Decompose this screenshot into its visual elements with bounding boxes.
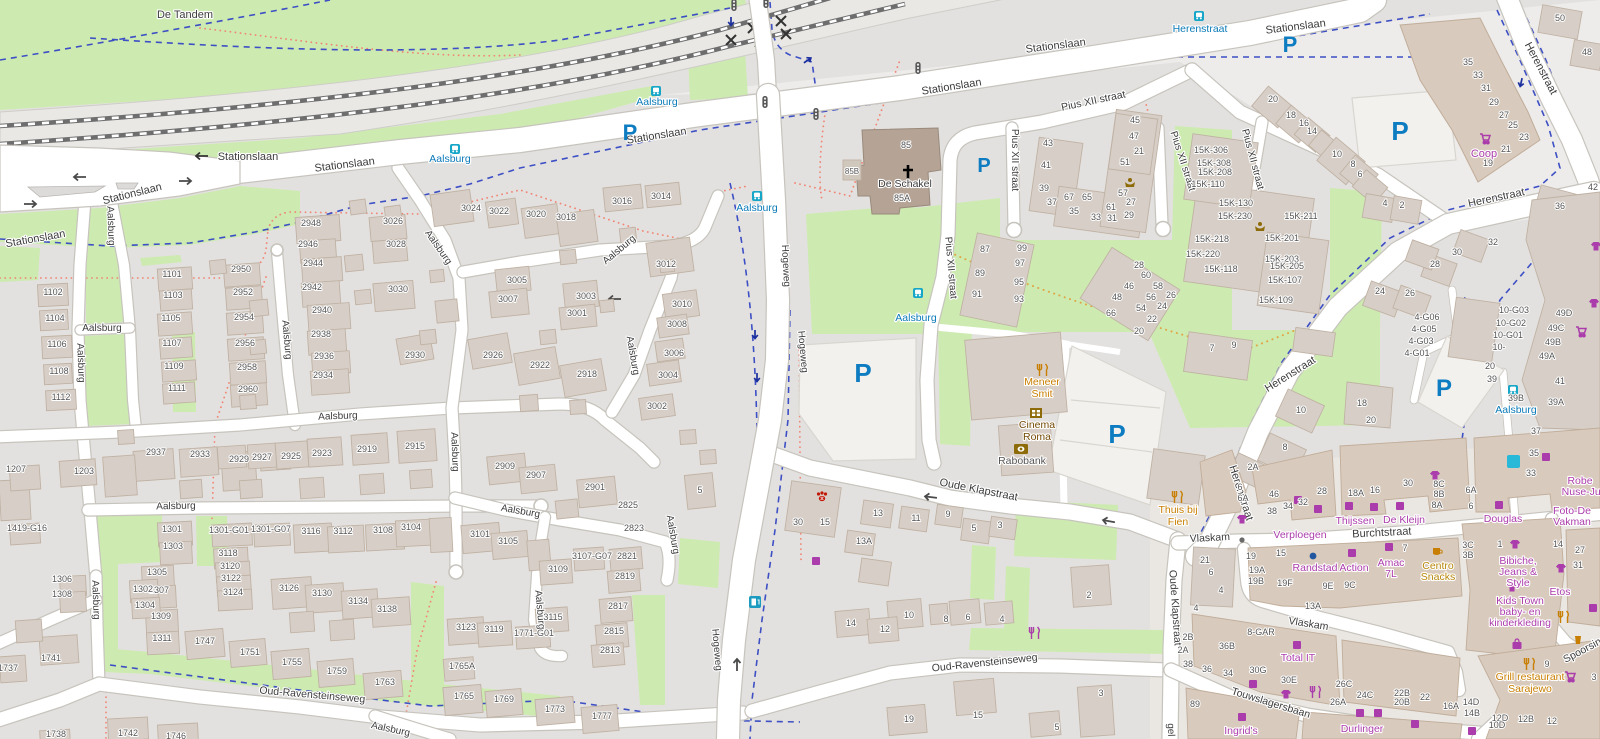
svg-text:43: 43 bbox=[1043, 138, 1053, 148]
svg-text:20: 20 bbox=[1366, 415, 1376, 425]
svg-text:1741: 1741 bbox=[41, 653, 61, 663]
svg-text:15K-201: 15K-201 bbox=[1265, 233, 1299, 243]
svg-text:Randstad: Randstad bbox=[1293, 562, 1338, 574]
svg-text:2815: 2815 bbox=[604, 626, 624, 636]
svg-text:49B: 49B bbox=[1545, 337, 1561, 347]
svg-text:3116: 3116 bbox=[301, 526, 320, 536]
svg-text:1301: 1301 bbox=[162, 524, 182, 534]
svg-text:13: 13 bbox=[873, 508, 883, 518]
svg-text:3006: 3006 bbox=[664, 348, 684, 358]
svg-text:11: 11 bbox=[911, 513, 920, 523]
svg-text:33: 33 bbox=[1526, 468, 1536, 478]
svg-text:3022: 3022 bbox=[489, 206, 509, 216]
svg-text:P: P bbox=[1108, 419, 1125, 449]
svg-text:27: 27 bbox=[1126, 197, 1136, 207]
svg-text:3008: 3008 bbox=[667, 319, 687, 329]
svg-text:1104: 1104 bbox=[45, 313, 64, 323]
svg-text:Smit: Smit bbox=[1032, 388, 1053, 400]
svg-text:Aalsburg: Aalsburg bbox=[104, 206, 116, 246]
svg-text:3005: 3005 bbox=[507, 275, 527, 285]
svg-text:89: 89 bbox=[1190, 699, 1200, 709]
svg-text:3004: 3004 bbox=[658, 370, 678, 380]
svg-text:51: 51 bbox=[1120, 157, 1130, 167]
svg-text:15K-205: 15K-205 bbox=[1270, 261, 1304, 271]
svg-text:Total IT: Total IT bbox=[1281, 652, 1316, 664]
svg-text:18A: 18A bbox=[1348, 488, 1364, 498]
svg-text:1308: 1308 bbox=[52, 589, 72, 599]
svg-text:6: 6 bbox=[1357, 169, 1362, 179]
svg-text:26: 26 bbox=[1166, 290, 1176, 300]
svg-text:15K-211: 15K-211 bbox=[1284, 211, 1317, 221]
svg-text:15K-110: 15K-110 bbox=[1191, 179, 1224, 189]
svg-text:1309: 1309 bbox=[151, 611, 171, 621]
svg-text:P: P bbox=[1391, 116, 1408, 146]
svg-text:10: 10 bbox=[1296, 405, 1306, 415]
svg-text:46: 46 bbox=[1269, 489, 1279, 499]
svg-text:10: 10 bbox=[904, 610, 914, 620]
svg-text:2944: 2944 bbox=[303, 258, 323, 268]
svg-text:3134: 3134 bbox=[348, 596, 368, 606]
svg-text:12: 12 bbox=[880, 624, 890, 634]
svg-text:58: 58 bbox=[1153, 281, 1163, 291]
svg-text:4: 4 bbox=[1382, 198, 1387, 208]
svg-text:1755: 1755 bbox=[282, 657, 302, 667]
svg-text:2952: 2952 bbox=[233, 287, 253, 297]
svg-text:3130: 3130 bbox=[312, 588, 332, 598]
svg-text:Aalsburg: Aalsburg bbox=[74, 343, 86, 383]
svg-text:20B: 20B bbox=[1394, 697, 1410, 707]
svg-text:20: 20 bbox=[1134, 326, 1144, 336]
svg-text:3002: 3002 bbox=[647, 401, 667, 411]
svg-text:24C: 24C bbox=[1357, 690, 1374, 700]
svg-text:Rabobank: Rabobank bbox=[998, 455, 1047, 467]
svg-text:Fien: Fien bbox=[1168, 516, 1189, 528]
svg-text:26A: 26A bbox=[1330, 697, 1346, 707]
svg-text:97: 97 bbox=[1015, 258, 1025, 268]
svg-text:2823: 2823 bbox=[624, 523, 644, 533]
svg-text:3115: 3115 bbox=[543, 612, 562, 622]
svg-text:15K-306: 15K-306 bbox=[1194, 145, 1228, 155]
svg-text:3: 3 bbox=[997, 520, 1002, 530]
svg-text:66: 66 bbox=[1106, 308, 1116, 318]
svg-text:15: 15 bbox=[820, 517, 830, 527]
svg-text:1746: 1746 bbox=[166, 731, 186, 739]
svg-text:7L: 7L bbox=[1385, 568, 1397, 580]
svg-text:34: 34 bbox=[1283, 501, 1293, 511]
svg-text:21: 21 bbox=[1134, 146, 1144, 156]
svg-text:1203: 1203 bbox=[74, 466, 94, 476]
svg-text:89: 89 bbox=[975, 268, 985, 278]
svg-text:3123: 3123 bbox=[456, 622, 476, 632]
svg-text:1773: 1773 bbox=[545, 704, 565, 714]
svg-text:23: 23 bbox=[1519, 132, 1529, 142]
svg-text:4-G03: 4-G03 bbox=[1408, 336, 1433, 346]
svg-text:2929: 2929 bbox=[229, 454, 249, 464]
svg-text:7: 7 bbox=[1402, 543, 1407, 553]
svg-text:Aalsburg: Aalsburg bbox=[429, 153, 471, 165]
svg-text:9E: 9E bbox=[1322, 581, 1333, 591]
svg-text:91: 91 bbox=[972, 289, 982, 299]
svg-text:21: 21 bbox=[1200, 555, 1210, 565]
svg-text:3138: 3138 bbox=[377, 604, 397, 614]
svg-text:26C: 26C bbox=[1336, 679, 1353, 689]
svg-text:2948: 2948 bbox=[301, 218, 321, 228]
svg-text:19B: 19B bbox=[1248, 576, 1264, 586]
svg-text:20: 20 bbox=[1485, 361, 1495, 371]
svg-text:18: 18 bbox=[1357, 398, 1367, 408]
svg-text:48: 48 bbox=[1112, 292, 1122, 302]
svg-text:22: 22 bbox=[1420, 692, 1430, 702]
svg-text:9: 9 bbox=[1544, 659, 1549, 669]
svg-text:Thuis bij: Thuis bij bbox=[1158, 504, 1197, 516]
svg-text:31: 31 bbox=[1107, 213, 1117, 223]
svg-text:39: 39 bbox=[1039, 183, 1049, 193]
svg-text:3C: 3C bbox=[1462, 540, 1474, 550]
svg-text:54: 54 bbox=[1136, 303, 1146, 313]
svg-text:85: 85 bbox=[901, 140, 911, 150]
svg-text:1747: 1747 bbox=[195, 636, 215, 646]
svg-text:Aalsburg: Aalsburg bbox=[895, 312, 937, 324]
svg-text:1769: 1769 bbox=[494, 694, 514, 704]
svg-text:28: 28 bbox=[1134, 260, 1144, 270]
svg-text:Aalsburg: Aalsburg bbox=[1495, 404, 1537, 416]
svg-text:Douglas: Douglas bbox=[1484, 513, 1523, 525]
svg-text:6: 6 bbox=[1468, 501, 1473, 511]
svg-text:3122: 3122 bbox=[221, 573, 241, 583]
svg-text:24: 24 bbox=[1157, 301, 1167, 311]
svg-text:10: 10 bbox=[1332, 149, 1342, 159]
svg-text:2927: 2927 bbox=[252, 452, 272, 462]
svg-text:4: 4 bbox=[999, 614, 1004, 624]
svg-text:3020: 3020 bbox=[526, 209, 546, 219]
svg-text:22: 22 bbox=[1147, 314, 1157, 324]
svg-text:De Kleijn: De Kleijn bbox=[1383, 514, 1425, 526]
svg-text:1763: 1763 bbox=[375, 677, 395, 687]
svg-text:1106: 1106 bbox=[47, 339, 66, 349]
svg-text:1112: 1112 bbox=[52, 392, 71, 402]
svg-text:Grill restaurant: Grill restaurant bbox=[1496, 671, 1565, 683]
svg-text:Thijssen: Thijssen bbox=[1335, 515, 1374, 527]
svg-text:42: 42 bbox=[1588, 182, 1598, 192]
svg-text:4: 4 bbox=[1193, 603, 1198, 613]
svg-text:36: 36 bbox=[1555, 201, 1565, 211]
svg-text:20: 20 bbox=[1268, 94, 1278, 104]
svg-text:35: 35 bbox=[1069, 206, 1079, 216]
svg-text:9: 9 bbox=[1231, 340, 1236, 350]
svg-text:3126: 3126 bbox=[279, 583, 299, 593]
svg-text:14B: 14B bbox=[1464, 708, 1480, 718]
svg-text:30: 30 bbox=[1452, 247, 1462, 257]
svg-text:33: 33 bbox=[1091, 212, 1101, 222]
svg-text:P: P bbox=[977, 155, 990, 177]
svg-text:3028: 3028 bbox=[386, 239, 406, 249]
svg-text:36: 36 bbox=[1202, 664, 1212, 674]
svg-text:3030: 3030 bbox=[388, 284, 408, 294]
svg-text:67: 67 bbox=[1064, 192, 1074, 202]
svg-text:15K-208: 15K-208 bbox=[1198, 167, 1232, 177]
svg-text:Aalsburg: Aalsburg bbox=[736, 202, 778, 214]
svg-text:4-G06: 4-G06 bbox=[1414, 312, 1439, 322]
svg-text:60: 60 bbox=[1141, 270, 1151, 280]
svg-text:1419-G16: 1419-G16 bbox=[7, 523, 47, 533]
svg-text:15K-109: 15K-109 bbox=[1259, 295, 1293, 305]
svg-text:1765A: 1765A bbox=[449, 661, 475, 671]
svg-text:P: P bbox=[1436, 375, 1452, 402]
svg-text:3012: 3012 bbox=[656, 259, 676, 269]
svg-text:Cinema: Cinema bbox=[1019, 419, 1055, 431]
svg-text:2954: 2954 bbox=[234, 312, 254, 322]
svg-text:30E: 30E bbox=[1281, 675, 1297, 685]
svg-text:49C: 49C bbox=[1548, 323, 1565, 333]
svg-text:3014: 3014 bbox=[651, 191, 671, 201]
svg-text:Vlaskam: Vlaskam bbox=[1189, 531, 1230, 545]
svg-text:28: 28 bbox=[1430, 259, 1440, 269]
svg-text:8: 8 bbox=[1282, 442, 1287, 452]
svg-text:3001: 3001 bbox=[567, 308, 587, 318]
svg-text:2B: 2B bbox=[1182, 632, 1193, 642]
svg-text:3: 3 bbox=[1098, 688, 1103, 698]
svg-text:2821: 2821 bbox=[617, 551, 637, 561]
svg-text:2819: 2819 bbox=[615, 571, 635, 581]
svg-text:1108: 1108 bbox=[49, 366, 68, 376]
svg-text:1301-G07: 1301-G07 bbox=[251, 524, 291, 534]
svg-text:3108: 3108 bbox=[373, 525, 393, 535]
svg-text:6: 6 bbox=[965, 612, 970, 622]
svg-text:2933: 2933 bbox=[190, 449, 210, 459]
svg-text:3119: 3119 bbox=[484, 624, 503, 634]
svg-text:2907: 2907 bbox=[526, 470, 546, 480]
svg-text:3: 3 bbox=[1591, 672, 1596, 682]
svg-text:Roma: Roma bbox=[1023, 431, 1051, 443]
svg-text:37: 37 bbox=[1531, 426, 1541, 436]
svg-text:18: 18 bbox=[1286, 110, 1296, 120]
svg-text:3118: 3118 bbox=[218, 548, 237, 558]
svg-text:1765: 1765 bbox=[454, 691, 474, 701]
svg-text:Verploegen: Verploegen bbox=[1273, 529, 1326, 541]
svg-text:4-G05: 4-G05 bbox=[1411, 324, 1436, 334]
svg-text:3124: 3124 bbox=[223, 587, 243, 597]
svg-text:93: 93 bbox=[1014, 294, 1024, 304]
svg-text:19: 19 bbox=[1246, 551, 1256, 561]
svg-text:1111: 1111 bbox=[168, 383, 186, 393]
svg-text:12B: 12B bbox=[1518, 714, 1534, 724]
svg-text:2901: 2901 bbox=[585, 482, 605, 492]
svg-text:3105: 3105 bbox=[498, 536, 518, 546]
svg-text:24: 24 bbox=[1375, 286, 1385, 296]
svg-text:Stationslaan: Stationslaan bbox=[218, 151, 279, 163]
svg-text:26: 26 bbox=[1405, 288, 1415, 298]
svg-text:15K-118: 15K-118 bbox=[1204, 264, 1237, 274]
svg-text:Pius XII straat: Pius XII straat bbox=[1009, 129, 1020, 191]
svg-text:8A: 8A bbox=[1431, 500, 1442, 510]
svg-text:19: 19 bbox=[1483, 158, 1493, 168]
svg-text:38: 38 bbox=[1183, 659, 1193, 669]
svg-text:3024: 3024 bbox=[461, 203, 481, 213]
svg-text:gel: gel bbox=[1165, 723, 1176, 737]
svg-text:5: 5 bbox=[971, 523, 976, 533]
svg-text:29: 29 bbox=[1489, 97, 1499, 107]
svg-text:3007: 3007 bbox=[498, 294, 518, 304]
svg-text:27: 27 bbox=[1499, 110, 1509, 120]
svg-text:Etos: Etos bbox=[1549, 586, 1570, 598]
svg-text:Aalsburg: Aalsburg bbox=[82, 323, 121, 334]
svg-text:46: 46 bbox=[1124, 281, 1134, 291]
svg-text:37: 37 bbox=[1047, 197, 1057, 207]
svg-text:3107-G07: 3107-G07 bbox=[572, 551, 612, 561]
svg-text:30: 30 bbox=[793, 517, 803, 527]
svg-text:1105: 1105 bbox=[161, 313, 180, 323]
svg-text:1751: 1751 bbox=[240, 647, 260, 657]
svg-text:1301-G01: 1301-G01 bbox=[209, 525, 249, 535]
svg-text:56: 56 bbox=[1146, 292, 1156, 302]
svg-text:De Schakel: De Schakel bbox=[878, 178, 932, 190]
svg-text:8: 8 bbox=[1350, 159, 1355, 169]
svg-text:33: 33 bbox=[1473, 70, 1483, 80]
svg-text:2813: 2813 bbox=[600, 645, 620, 655]
svg-text:3026: 3026 bbox=[383, 216, 403, 226]
svg-text:1303: 1303 bbox=[163, 541, 183, 551]
svg-text:32: 32 bbox=[1488, 237, 1498, 247]
svg-text:1304: 1304 bbox=[135, 600, 155, 610]
svg-text:2825: 2825 bbox=[618, 500, 638, 510]
svg-text:31: 31 bbox=[1481, 83, 1491, 93]
svg-text:1: 1 bbox=[1497, 539, 1502, 549]
svg-text:5: 5 bbox=[697, 485, 702, 495]
svg-text:3B: 3B bbox=[1462, 550, 1473, 560]
svg-text:Snacks: Snacks bbox=[1421, 571, 1455, 583]
svg-text:Ingrid's: Ingrid's bbox=[1224, 725, 1258, 737]
svg-text:39A: 39A bbox=[1548, 397, 1564, 407]
svg-text:19F: 19F bbox=[1277, 578, 1293, 588]
svg-text:1759: 1759 bbox=[327, 666, 347, 676]
svg-text:2909: 2909 bbox=[495, 461, 515, 471]
svg-text:15K-218: 15K-218 bbox=[1195, 234, 1229, 244]
svg-text:1302: 1302 bbox=[133, 584, 153, 594]
svg-text:35: 35 bbox=[1463, 57, 1473, 67]
svg-text:38: 38 bbox=[1267, 506, 1277, 516]
svg-text:6A: 6A bbox=[1237, 493, 1248, 503]
svg-text:19A: 19A bbox=[1249, 565, 1265, 575]
svg-text:14: 14 bbox=[1307, 126, 1317, 136]
svg-text:10-G01: 10-G01 bbox=[1493, 330, 1523, 340]
svg-text:2960: 2960 bbox=[238, 384, 258, 394]
svg-text:35: 35 bbox=[1529, 448, 1539, 458]
svg-text:1737: 1737 bbox=[0, 663, 18, 673]
svg-text:1311: 1311 bbox=[152, 633, 171, 643]
svg-text:29: 29 bbox=[1124, 210, 1134, 220]
svg-text:39: 39 bbox=[1487, 374, 1497, 384]
svg-text:P: P bbox=[854, 358, 871, 388]
svg-text:28: 28 bbox=[1317, 486, 1327, 496]
svg-text:50: 50 bbox=[1555, 13, 1565, 23]
svg-text:2934: 2934 bbox=[313, 370, 333, 380]
svg-text:8: 8 bbox=[943, 614, 948, 624]
svg-text:2: 2 bbox=[1086, 590, 1091, 600]
svg-text:19: 19 bbox=[904, 714, 914, 724]
svg-text:Vakman: Vakman bbox=[1553, 516, 1591, 528]
svg-text:Aalsburg: Aalsburg bbox=[636, 96, 678, 108]
svg-text:Aalsburg: Aalsburg bbox=[448, 432, 460, 472]
svg-text:P: P bbox=[623, 120, 638, 145]
svg-text:Style: Style bbox=[1506, 577, 1530, 589]
svg-text:3104: 3104 bbox=[401, 522, 421, 532]
svg-text:1102: 1102 bbox=[43, 287, 62, 297]
svg-text:2: 2 bbox=[1399, 200, 1404, 210]
svg-text:31: 31 bbox=[1573, 560, 1583, 570]
svg-text:2946: 2946 bbox=[298, 239, 318, 249]
svg-text:15: 15 bbox=[1276, 548, 1286, 558]
svg-text:49D: 49D bbox=[1556, 308, 1573, 318]
svg-text:2915: 2915 bbox=[405, 441, 425, 451]
svg-text:41: 41 bbox=[1041, 160, 1051, 170]
svg-text:4: 4 bbox=[1218, 585, 1223, 595]
svg-text:95: 95 bbox=[1014, 277, 1024, 287]
svg-text:85B: 85B bbox=[845, 167, 859, 176]
svg-text:3101: 3101 bbox=[470, 529, 490, 539]
svg-text:49A: 49A bbox=[1539, 351, 1555, 361]
svg-text:2925: 2925 bbox=[281, 451, 301, 461]
svg-text:9C: 9C bbox=[1344, 580, 1356, 590]
svg-text:10-: 10- bbox=[1492, 342, 1505, 352]
svg-text:3010: 3010 bbox=[672, 299, 692, 309]
svg-text:1107: 1107 bbox=[162, 338, 181, 348]
svg-text:3016: 3016 bbox=[612, 196, 632, 206]
svg-text:34: 34 bbox=[1223, 668, 1233, 678]
svg-text:10-G02: 10-G02 bbox=[1496, 318, 1526, 328]
svg-text:21: 21 bbox=[1501, 144, 1511, 154]
svg-text:1207: 1207 bbox=[6, 464, 26, 474]
svg-text:2930: 2930 bbox=[405, 350, 425, 360]
svg-text:1306: 1306 bbox=[52, 574, 72, 584]
svg-text:15K-220: 15K-220 bbox=[1186, 249, 1220, 259]
svg-text:8B: 8B bbox=[1433, 489, 1444, 499]
svg-text:4-G01: 4-G01 bbox=[1404, 348, 1429, 358]
svg-text:2A: 2A bbox=[1177, 645, 1188, 655]
svg-text:32: 32 bbox=[1298, 497, 1308, 507]
svg-text:1101: 1101 bbox=[162, 269, 181, 279]
svg-text:3018: 3018 bbox=[556, 212, 576, 222]
svg-text:48: 48 bbox=[1582, 47, 1592, 57]
svg-text:1305: 1305 bbox=[147, 567, 167, 577]
svg-text:Herenstraat: Herenstraat bbox=[1173, 23, 1228, 35]
svg-text:Meneer: Meneer bbox=[1024, 376, 1060, 388]
svg-text:15K-130: 15K-130 bbox=[1219, 198, 1253, 208]
svg-text:3120: 3120 bbox=[220, 561, 240, 571]
svg-text:Hogeweg: Hogeweg bbox=[779, 244, 792, 287]
svg-text:De Tandem: De Tandem bbox=[157, 9, 213, 21]
svg-text:6: 6 bbox=[1237, 482, 1242, 492]
svg-text:65: 65 bbox=[1082, 192, 1092, 202]
svg-text:41: 41 bbox=[1555, 376, 1565, 386]
svg-text:6: 6 bbox=[1208, 567, 1213, 577]
svg-text:1777: 1777 bbox=[592, 711, 612, 721]
svg-text:2937: 2937 bbox=[146, 447, 166, 457]
svg-text:P: P bbox=[1283, 32, 1298, 57]
svg-text:Nuse-Juw: Nuse-Juw bbox=[1562, 486, 1600, 498]
svg-text:47: 47 bbox=[1129, 131, 1139, 141]
svg-text:1742: 1742 bbox=[118, 728, 138, 738]
svg-text:2918: 2918 bbox=[577, 369, 597, 379]
svg-text:16A: 16A bbox=[1443, 701, 1459, 711]
svg-text:2956: 2956 bbox=[235, 338, 255, 348]
svg-text:7: 7 bbox=[1209, 343, 1214, 353]
svg-text:2958: 2958 bbox=[237, 362, 257, 372]
svg-text:Durlinger: Durlinger bbox=[1341, 723, 1384, 735]
svg-text:36B: 36B bbox=[1219, 641, 1235, 651]
svg-text:Action: Action bbox=[1339, 562, 1368, 574]
svg-text:8-GAR: 8-GAR bbox=[1247, 627, 1275, 637]
svg-text:14: 14 bbox=[846, 618, 856, 628]
